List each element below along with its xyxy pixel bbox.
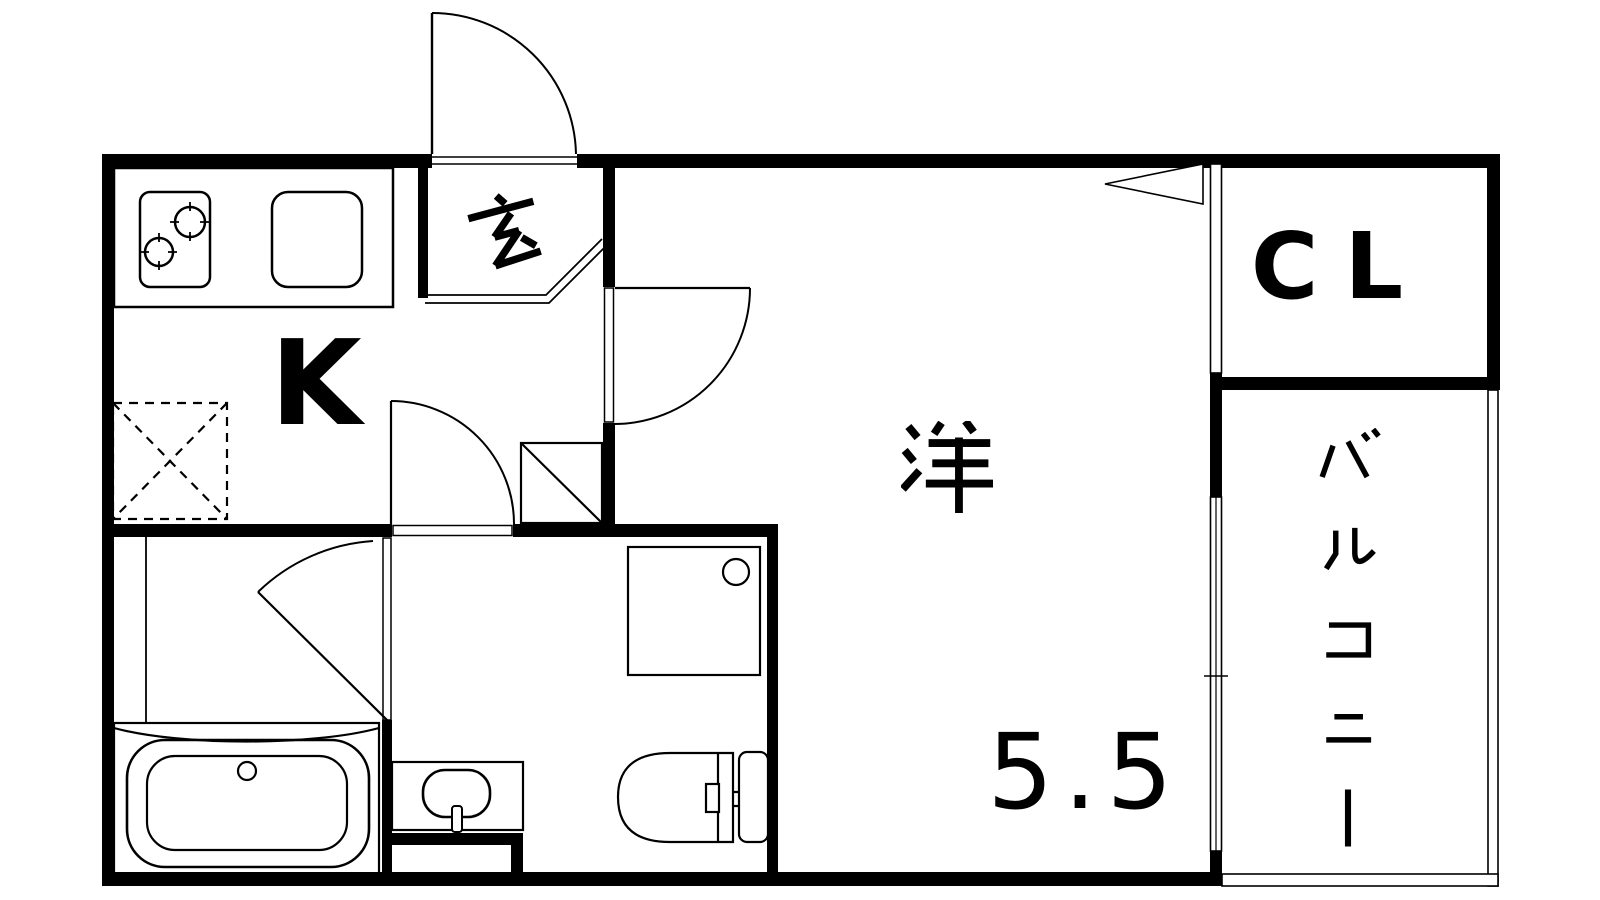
balcony-kana-chouon: [1314, 784, 1382, 852]
refrigerator-space-icon: [113, 403, 227, 519]
wall-entrance-left: [418, 168, 428, 298]
wall-room-right-stub: [1210, 851, 1222, 886]
door-swing-arc: [432, 13, 576, 154]
bathtub-icon: [114, 723, 379, 876]
washing-machine-pan-icon: [628, 547, 760, 675]
entrance-door: [432, 13, 577, 168]
balcony-kana-ko: [1314, 606, 1382, 674]
door-swing-arc: [614, 288, 750, 424]
toilet-icon: [618, 752, 768, 842]
door-swing-arc: [391, 401, 514, 524]
balcony-label: バルコニー: [1313, 410, 1383, 870]
bathroom-door: [258, 538, 391, 720]
western-room-kanji-glyph: [901, 421, 993, 513]
wall-room-right-mid: [1210, 373, 1222, 497]
closet-label: CL: [1222, 216, 1432, 316]
bathroom: [114, 537, 379, 876]
balcony-kana-ni: [1314, 695, 1382, 763]
washroom-door: [391, 401, 514, 537]
room-door: [603, 287, 750, 424]
wall-room-left-lower: [603, 423, 615, 537]
wall-closet-right: [1487, 154, 1500, 390]
kitchen-counter: [114, 168, 393, 307]
balcony-kana-ba: [1314, 428, 1382, 496]
balcony-railing-bottom: [1222, 874, 1498, 886]
wall-kitchen-bottom-right: [513, 524, 778, 537]
balcony-window: [1204, 497, 1228, 851]
door-leaf: [258, 592, 387, 720]
door-swing-arc: [258, 541, 373, 592]
kitchen-label: K: [236, 318, 396, 448]
wall-left: [102, 154, 114, 886]
wall-room-left-upper: [603, 168, 615, 287]
wall-basin-recess: [388, 833, 523, 845]
wall-washroom-right: [767, 524, 778, 886]
folding-door-icon: [1105, 164, 1203, 204]
western-room-label: 洋: [901, 421, 993, 513]
stove-icon: [140, 192, 210, 287]
floor-plan: K CL 5.5 玄 洋 バルコニー: [0, 0, 1600, 900]
balcony-railing-right: [1488, 390, 1498, 886]
closet-opening: [1105, 164, 1222, 373]
wall-basin-recess-side: [511, 845, 523, 872]
kitchen-sink-icon: [272, 192, 362, 287]
wall-closet-bottom: [1210, 377, 1497, 390]
washbasin-icon: [392, 762, 523, 832]
wall-bottom: [102, 872, 1222, 886]
wall-top-left: [102, 154, 432, 168]
pipe-space: [521, 443, 602, 523]
wall-bath-divider: [382, 720, 392, 886]
wall-kitchen-bottom-left: [114, 524, 392, 537]
room-size-label: 5.5: [980, 712, 1190, 832]
wall-top-right: [577, 154, 1497, 168]
balcony-kana-ru: [1314, 517, 1382, 585]
